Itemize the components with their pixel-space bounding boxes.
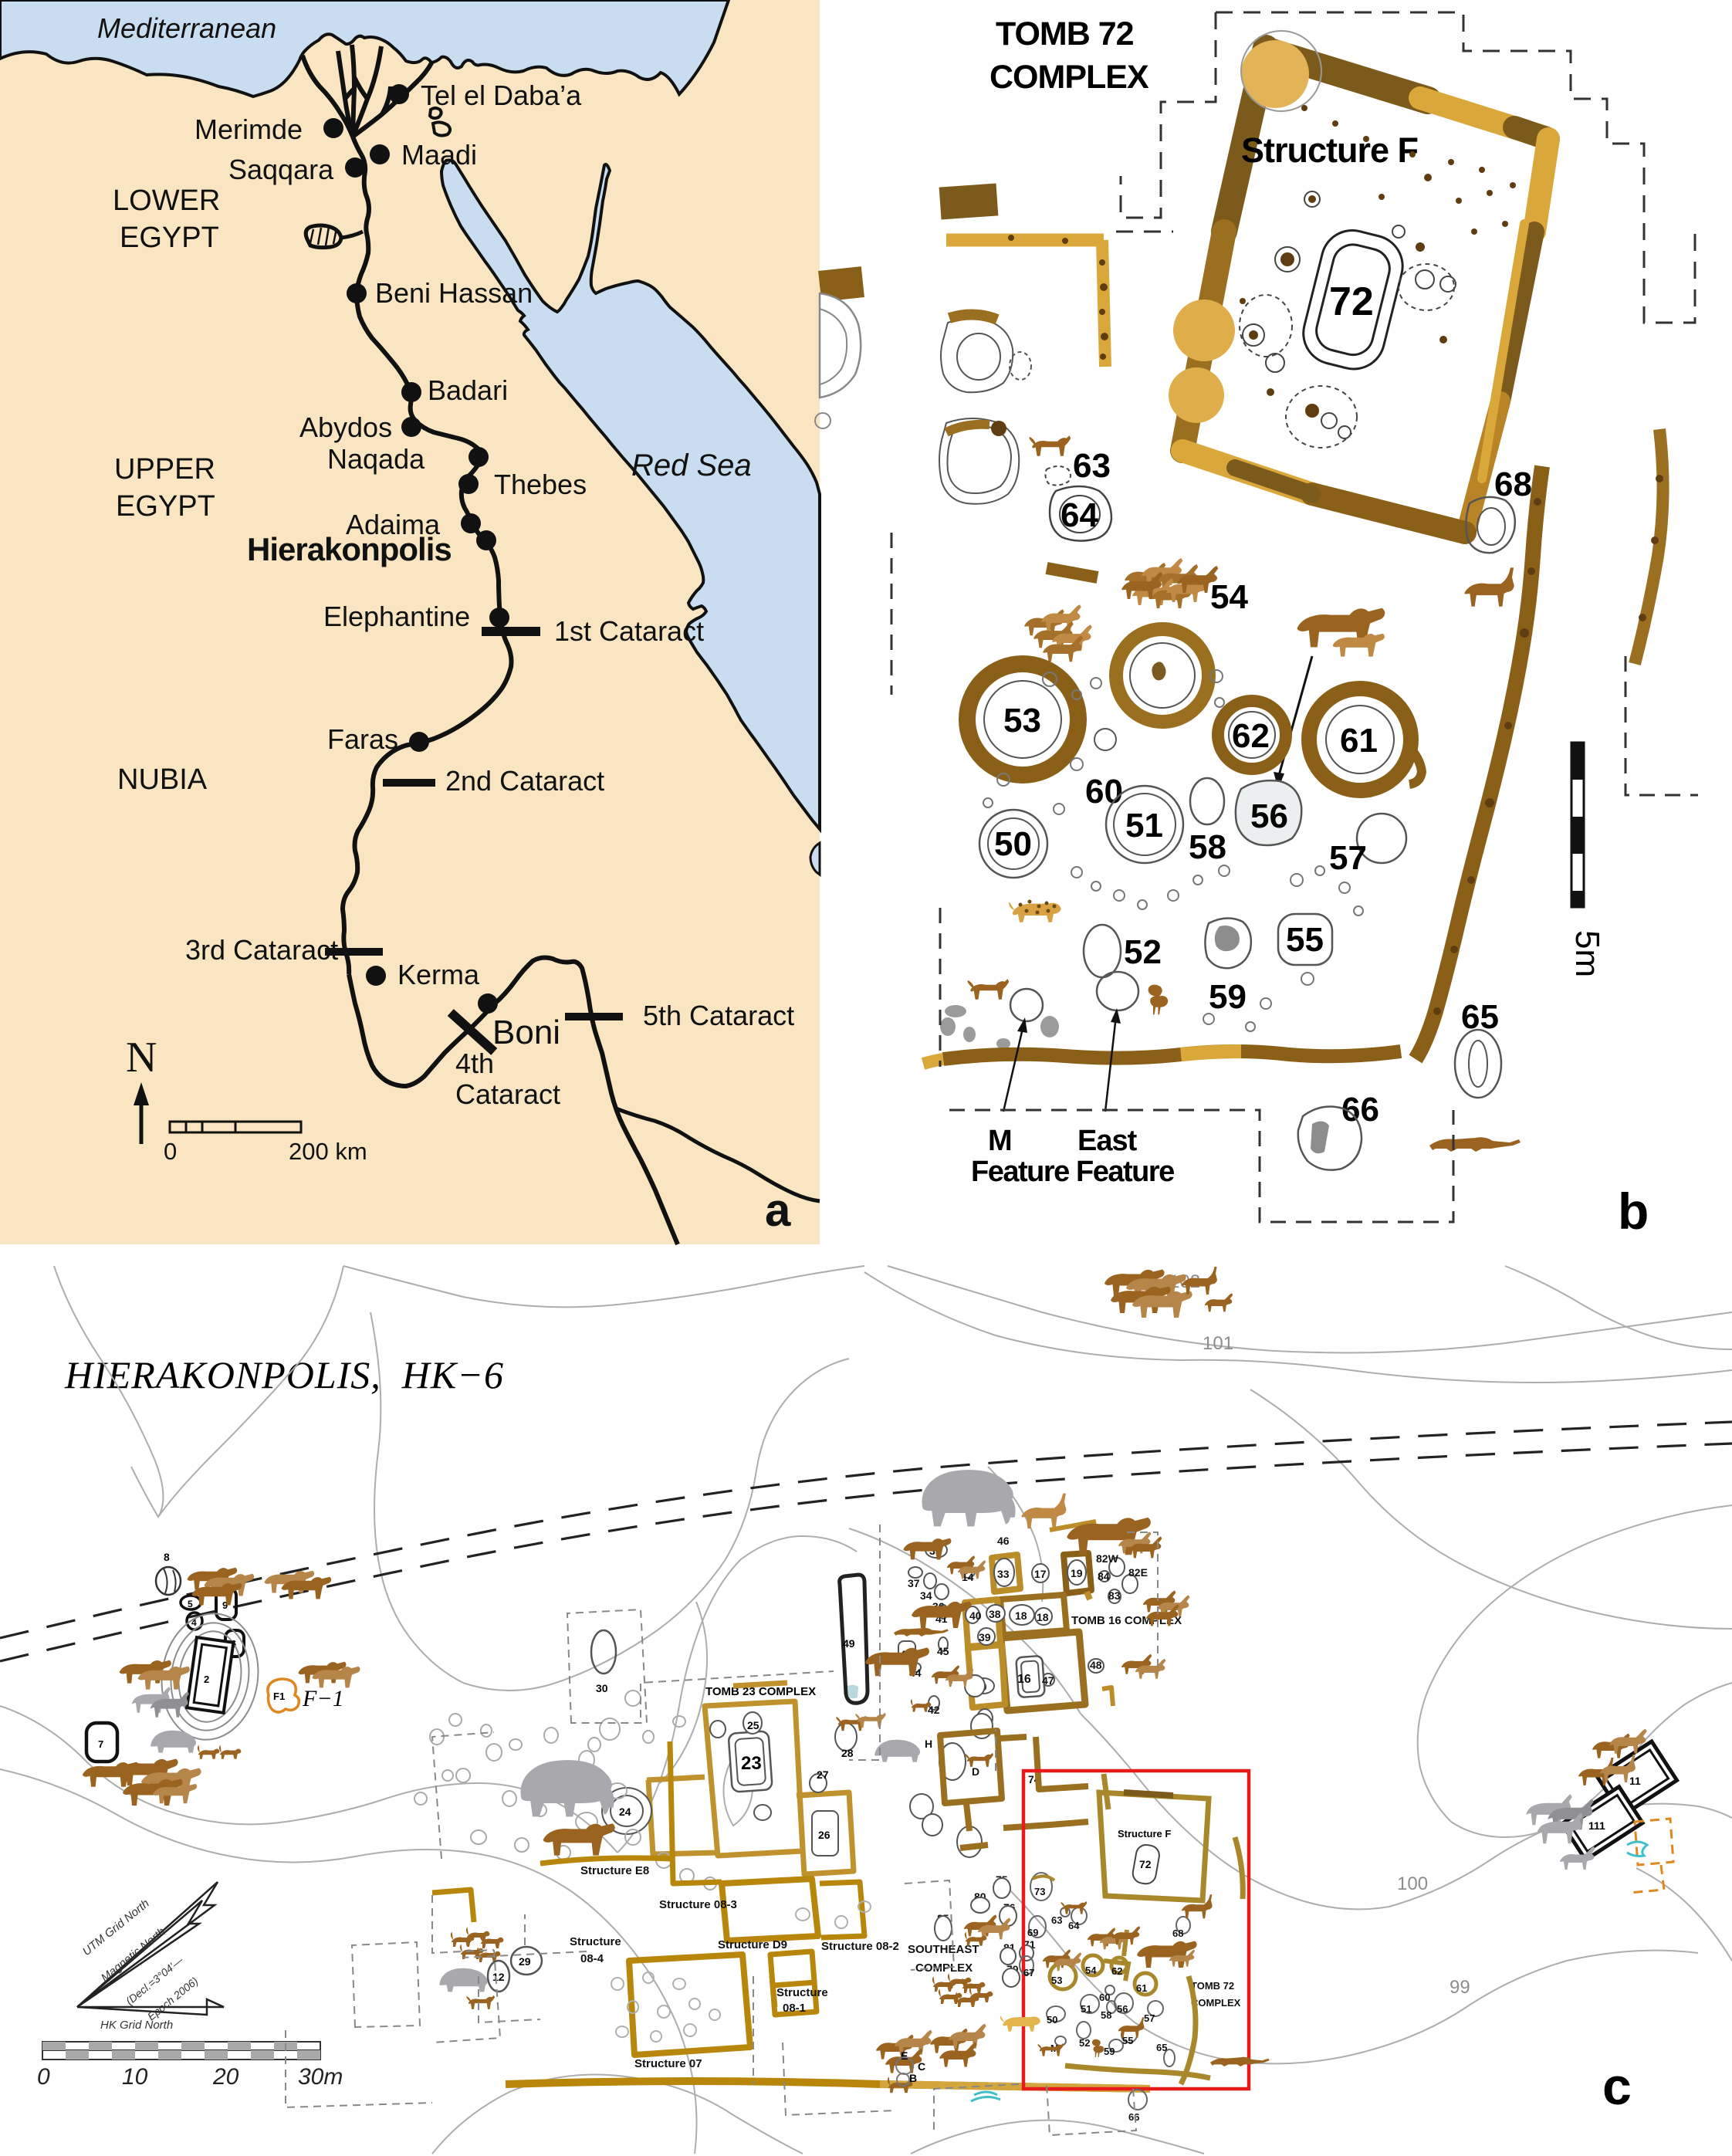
svg-text:1st Cataract: 1st Cataract [554, 615, 704, 647]
svg-text:F1: F1 [273, 1691, 285, 1702]
svg-text:46: 46 [997, 1535, 1010, 1547]
svg-text:60: 60 [1099, 1992, 1110, 2003]
svg-text:Thebes: Thebes [494, 469, 587, 500]
svg-text:C: C [918, 2060, 925, 2073]
svg-text:61: 61 [1136, 1982, 1147, 1994]
svg-text:Structure F: Structure F [1241, 130, 1418, 170]
svg-text:08-1: 08-1 [783, 2002, 806, 2015]
svg-text:Faras: Faras [327, 723, 398, 755]
svg-text:16: 16 [1017, 1673, 1031, 1686]
svg-text:51: 51 [1081, 2003, 1091, 2015]
svg-text:39: 39 [979, 1631, 991, 1643]
svg-text:30m: 30m [298, 2064, 343, 2090]
svg-text:HIERAKONPOLIS, HK−6: HIERAKONPOLIS, HK−6 [64, 1353, 504, 1396]
svg-text:Red Sea: Red Sea [631, 448, 752, 482]
svg-text:Structure F: Structure F [1118, 1828, 1171, 1840]
svg-text:28: 28 [841, 1747, 854, 1759]
svg-text:10: 10 [122, 2064, 148, 2090]
svg-text:Badari: Badari [428, 374, 508, 406]
svg-text:33: 33 [997, 1568, 1010, 1580]
svg-text:47: 47 [1042, 1674, 1054, 1687]
svg-text:Cataract: Cataract [455, 1078, 560, 1110]
svg-text:7: 7 [98, 1738, 103, 1750]
svg-text:52: 52 [1079, 2037, 1090, 2049]
svg-text:b: b [1618, 1183, 1649, 1240]
svg-text:27: 27 [817, 1768, 829, 1781]
svg-text:63: 63 [1073, 447, 1111, 485]
svg-text:18: 18 [1037, 1611, 1049, 1623]
svg-text:200 km: 200 km [289, 1138, 367, 1165]
svg-text:E: E [901, 2049, 908, 2062]
svg-text:Structure: Structure [776, 1986, 828, 1999]
svg-text:Tel el Daba’a: Tel el Daba’a [421, 80, 582, 111]
svg-text:69: 69 [1027, 1927, 1038, 1938]
svg-text:66: 66 [1128, 2111, 1139, 2123]
svg-text:Structure D9: Structure D9 [718, 1938, 787, 1951]
svg-text:11: 11 [1629, 1775, 1641, 1787]
svg-text:UPPER: UPPER [114, 453, 215, 486]
svg-text:59: 59 [1104, 2046, 1115, 2057]
svg-text:Mediterranean: Mediterranean [97, 12, 276, 44]
svg-text:COMPLEX: COMPLEX [1191, 1997, 1241, 2009]
svg-text:Abydos: Abydos [299, 411, 392, 443]
svg-text:08-4: 08-4 [580, 1952, 604, 1965]
svg-text:N: N [126, 1034, 157, 1081]
svg-text:17: 17 [1034, 1568, 1047, 1580]
svg-text:34: 34 [920, 1589, 932, 1602]
svg-text:50: 50 [994, 825, 1032, 863]
svg-text:58: 58 [1101, 2009, 1111, 2021]
svg-text:TOMB 23 COMPLEX: TOMB 23 COMPLEX [705, 1685, 816, 1698]
svg-text:Elephantine: Elephantine [323, 601, 470, 632]
svg-text:65: 65 [1156, 2042, 1167, 2053]
svg-text:Structure: Structure [570, 1935, 621, 1948]
svg-text:TOMB 72: TOMB 72 [1191, 1980, 1234, 1992]
svg-text:38: 38 [989, 1608, 1001, 1620]
svg-text:EGYPT: EGYPT [120, 222, 219, 254]
svg-text:Structure 07: Structure 07 [634, 2057, 702, 2070]
svg-text:29: 29 [519, 1955, 531, 1968]
svg-text:37: 37 [908, 1577, 920, 1589]
svg-text:82W: 82W [1096, 1552, 1119, 1565]
svg-text:30: 30 [596, 1682, 608, 1694]
svg-text:5: 5 [188, 1599, 193, 1609]
svg-text:58: 58 [1189, 828, 1226, 866]
svg-text:Structure E8: Structure E8 [580, 1864, 649, 1877]
svg-text:D: D [972, 1765, 979, 1778]
svg-text:111: 111 [1588, 1819, 1605, 1832]
svg-text:52: 52 [1124, 933, 1162, 971]
svg-text:12: 12 [492, 1971, 505, 1983]
svg-text:COMPLEX: COMPLEX [989, 59, 1149, 96]
svg-text:64: 64 [1068, 1920, 1080, 1931]
svg-text:19: 19 [1071, 1567, 1083, 1579]
svg-text:Naqada: Naqada [327, 443, 425, 475]
svg-text:63: 63 [1051, 1914, 1062, 1926]
svg-text:57: 57 [1144, 2012, 1155, 2024]
svg-text:Merimde: Merimde [195, 113, 303, 145]
svg-text:COMPLEX: COMPLEX [915, 1961, 973, 1975]
svg-text:45: 45 [937, 1645, 949, 1657]
svg-text:60: 60 [1085, 773, 1123, 811]
svg-text:HK Grid North: HK Grid North [100, 2019, 173, 2032]
svg-text:a: a [765, 1184, 791, 1236]
svg-text:101: 101 [1203, 1333, 1233, 1354]
svg-text:Structure 08-3: Structure 08-3 [659, 1898, 737, 1911]
svg-text:57: 57 [1329, 839, 1367, 877]
svg-text:0: 0 [164, 1138, 177, 1165]
svg-text:3rd Cataract: 3rd Cataract [185, 934, 338, 966]
svg-text:B: B [909, 2072, 917, 2084]
svg-text:EGYPT: EGYPT [116, 490, 215, 523]
svg-text:M: M [988, 1125, 1012, 1157]
svg-text:51: 51 [1125, 807, 1163, 844]
svg-text:NUBIA: NUBIA [117, 763, 208, 796]
svg-text:72: 72 [1139, 1858, 1152, 1870]
svg-text:F−1: F−1 [302, 1686, 344, 1711]
svg-text:100: 100 [1397, 1873, 1428, 1894]
svg-text:5th Cataract: 5th Cataract [643, 1000, 794, 1031]
svg-text:56: 56 [1117, 2003, 1128, 2015]
svg-text:c: c [1602, 2057, 1632, 2116]
svg-text:4th: 4th [455, 1048, 494, 1079]
svg-text:59: 59 [1209, 978, 1247, 1016]
svg-text:84: 84 [1098, 1570, 1110, 1582]
svg-text:40: 40 [969, 1609, 982, 1622]
svg-text:53: 53 [1051, 1975, 1062, 1986]
svg-text:53: 53 [1003, 702, 1041, 740]
svg-text:20: 20 [212, 2064, 239, 2090]
svg-text:23: 23 [741, 1753, 762, 1774]
svg-text:54: 54 [1085, 1965, 1097, 1976]
svg-text:64: 64 [1061, 496, 1098, 534]
svg-text:Hierakonpolis: Hierakonpolis [247, 531, 452, 567]
svg-text:83: 83 [1108, 1589, 1121, 1602]
svg-text:Maadi: Maadi [401, 139, 477, 171]
svg-text:Beni Hassan: Beni Hassan [375, 277, 533, 309]
svg-text:Feature: Feature [1076, 1156, 1174, 1188]
svg-text:73: 73 [1034, 1886, 1045, 1897]
svg-text:East: East [1077, 1125, 1138, 1157]
svg-text:LOWER: LOWER [113, 184, 220, 217]
svg-text:Boni: Boni [492, 1014, 560, 1051]
svg-text:68: 68 [1172, 1928, 1183, 1939]
svg-text:Kerma: Kerma [397, 959, 480, 990]
svg-text:62: 62 [1111, 1965, 1122, 1977]
svg-text:72: 72 [1329, 279, 1374, 324]
svg-text:56: 56 [1250, 797, 1288, 835]
svg-text:99: 99 [1450, 1977, 1470, 1998]
svg-text:0: 0 [37, 2064, 50, 2090]
svg-text:67: 67 [1023, 1967, 1034, 1978]
svg-text:H: H [925, 1738, 932, 1750]
svg-text:Structure 08-2: Structure 08-2 [821, 1940, 899, 1953]
svg-text:2nd Cataract: 2nd Cataract [445, 765, 604, 797]
svg-text:55: 55 [1122, 2035, 1133, 2046]
svg-text:49: 49 [843, 1637, 855, 1650]
svg-text:68: 68 [1494, 465, 1532, 503]
svg-text:55: 55 [1286, 921, 1324, 959]
svg-text:TOMB 72: TOMB 72 [996, 15, 1134, 52]
svg-text:48: 48 [1090, 1659, 1102, 1671]
svg-text:54: 54 [1210, 578, 1248, 616]
svg-text:26: 26 [818, 1829, 830, 1841]
svg-text:8: 8 [164, 1551, 170, 1563]
svg-text:61: 61 [1340, 722, 1378, 760]
svg-text:2: 2 [204, 1674, 209, 1685]
svg-text:Feature: Feature [971, 1156, 1069, 1188]
svg-text:25: 25 [747, 1719, 759, 1731]
svg-text:62: 62 [1232, 717, 1270, 755]
svg-text:Saqqara: Saqqara [228, 154, 334, 185]
svg-text:5m: 5m [1568, 930, 1606, 977]
svg-text:50: 50 [1047, 2014, 1057, 2026]
svg-text:82E: 82E [1128, 1566, 1148, 1579]
svg-text:24: 24 [619, 1806, 631, 1818]
svg-text:18: 18 [1015, 1609, 1027, 1622]
